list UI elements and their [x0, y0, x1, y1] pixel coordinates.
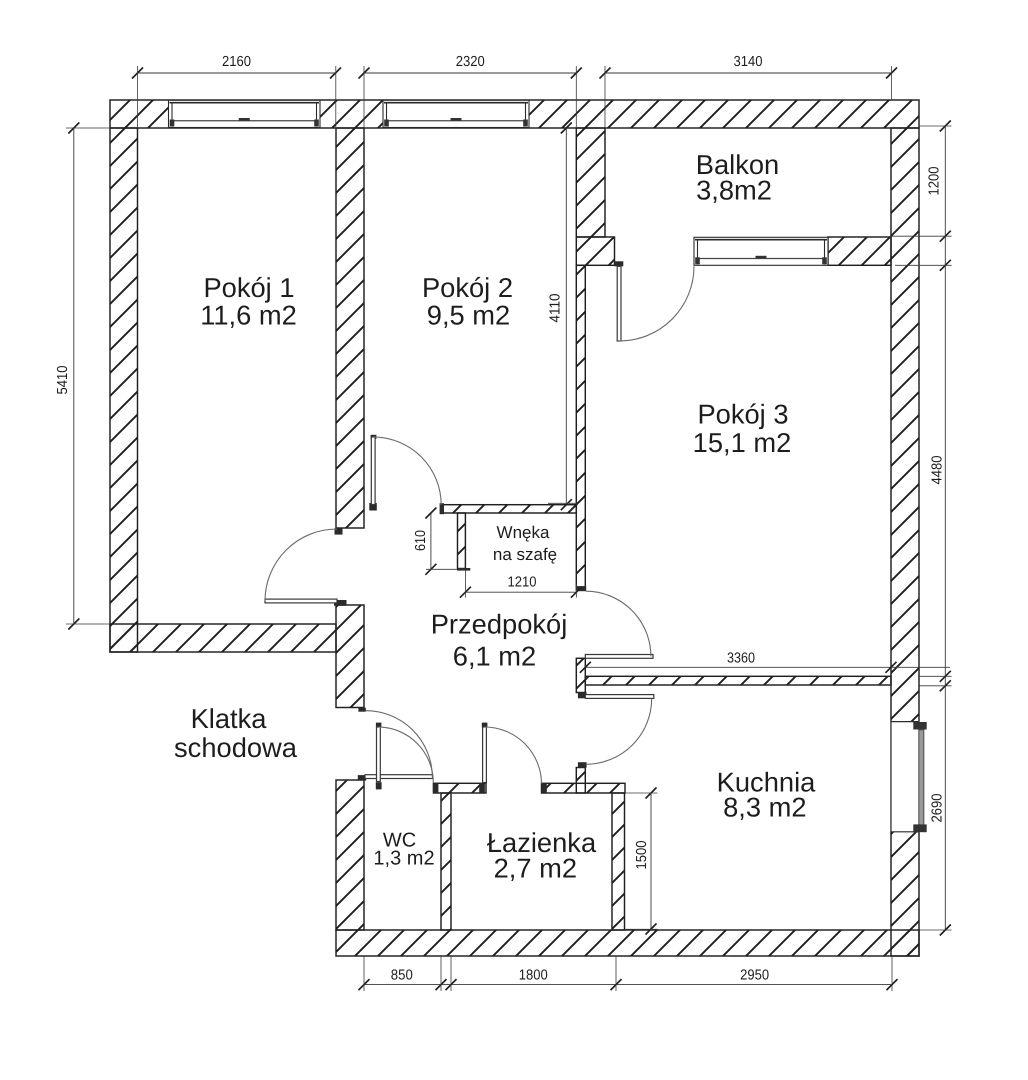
svg-text:1200: 1200 [927, 167, 943, 196]
svg-text:8,3 m2: 8,3 m2 [723, 792, 806, 823]
svg-text:Wnęka: Wnęka [497, 523, 550, 542]
svg-text:9,5 m2: 9,5 m2 [427, 300, 510, 331]
svg-text:3,8m2: 3,8m2 [696, 175, 772, 206]
svg-text:610: 610 [413, 530, 429, 551]
svg-text:Pokój 3: Pokój 3 [697, 399, 788, 430]
svg-text:850: 850 [391, 968, 413, 984]
svg-text:1,3 m2: 1,3 m2 [373, 848, 434, 870]
svg-text:2690: 2690 [930, 794, 946, 823]
svg-text:3140: 3140 [734, 54, 763, 70]
svg-text:1800: 1800 [519, 968, 548, 984]
svg-text:Przedpokój: Przedpokój [431, 609, 568, 640]
svg-text:2320: 2320 [456, 54, 485, 70]
svg-text:6,1 m2: 6,1 m2 [453, 641, 536, 672]
svg-text:2950: 2950 [740, 968, 769, 984]
svg-text:2,7 m2: 2,7 m2 [494, 853, 577, 884]
svg-text:5410: 5410 [55, 366, 71, 395]
svg-text:Klatka: Klatka [191, 703, 268, 734]
svg-text:1210: 1210 [508, 575, 537, 591]
svg-text:Pokój 2: Pokój 2 [422, 272, 513, 303]
svg-text:3360: 3360 [727, 651, 755, 667]
svg-text:Pokój 1: Pokój 1 [203, 272, 294, 303]
svg-text:4480: 4480 [930, 456, 946, 485]
svg-text:1500: 1500 [634, 841, 650, 870]
svg-text:11,6 m2: 11,6 m2 [200, 300, 297, 331]
svg-text:4110: 4110 [548, 294, 564, 323]
svg-text:2160: 2160 [222, 54, 251, 70]
svg-text:schodowa: schodowa [174, 732, 298, 763]
svg-text:15,1 m2: 15,1 m2 [693, 427, 792, 458]
svg-text:na szafę: na szafę [493, 545, 557, 564]
